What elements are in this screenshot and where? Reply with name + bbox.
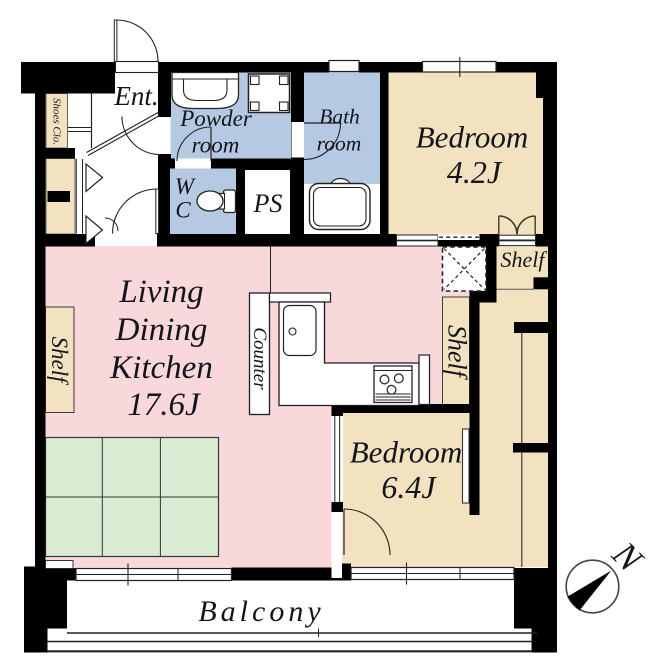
svg-text:Kitchen: Kitchen [109, 350, 213, 386]
svg-text:Counter: Counter [249, 327, 270, 390]
svg-text:Powder: Powder [179, 106, 253, 131]
svg-text:Dining: Dining [115, 312, 208, 348]
svg-text:Ent.: Ent. [113, 81, 158, 111]
svg-text:Balcony: Balcony [198, 595, 324, 628]
svg-text:Living: Living [118, 274, 203, 310]
svg-text:W: W [175, 174, 196, 199]
svg-text:room: room [317, 132, 362, 156]
svg-text:PS: PS [253, 189, 283, 218]
svg-text:Bedroom: Bedroom [416, 120, 529, 155]
svg-text:room: room [192, 133, 240, 158]
svg-text:Bedroom: Bedroom [350, 435, 463, 470]
svg-text:17.6J: 17.6J [127, 387, 201, 423]
svg-text:Shelf: Shelf [501, 247, 548, 272]
svg-text:Shelf: Shelf [443, 325, 472, 381]
svg-text:6.4J: 6.4J [381, 469, 437, 505]
svg-text:4.2J: 4.2J [447, 154, 503, 190]
svg-text:Shelf: Shelf [47, 337, 72, 387]
svg-text:Shoes Clo.: Shoes Clo. [50, 98, 62, 145]
svg-text:Bath: Bath [319, 105, 360, 129]
svg-text:C: C [175, 198, 191, 223]
